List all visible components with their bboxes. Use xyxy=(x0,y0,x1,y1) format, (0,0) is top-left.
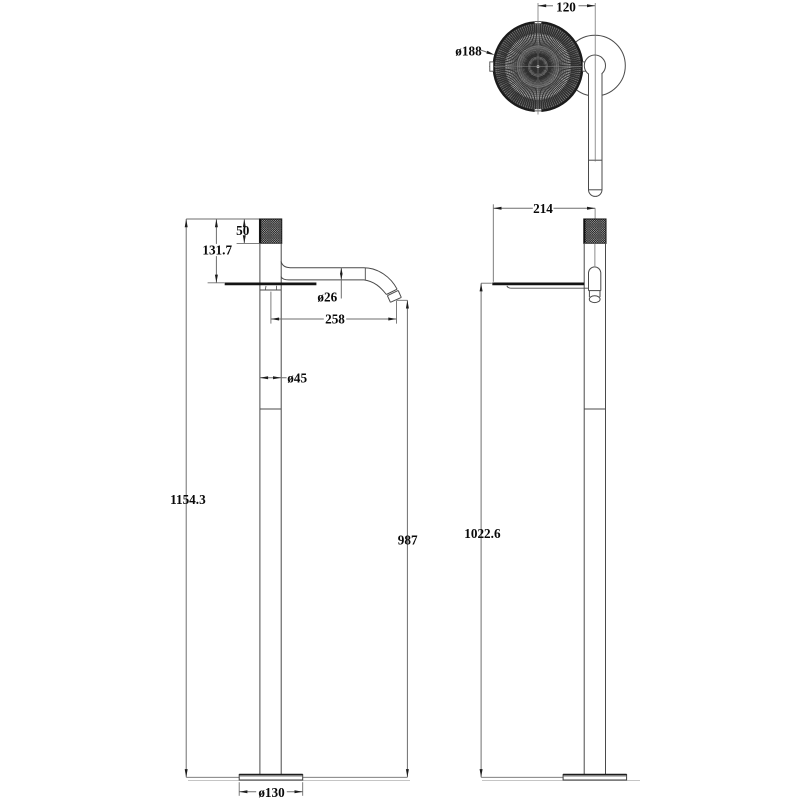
svg-text:987: 987 xyxy=(398,532,418,547)
svg-text:214: 214 xyxy=(533,201,553,216)
svg-text:50: 50 xyxy=(236,223,250,238)
svg-text:ø188: ø188 xyxy=(455,43,482,58)
svg-text:258: 258 xyxy=(325,312,345,327)
svg-text:ø130: ø130 xyxy=(258,785,285,800)
svg-text:1022.6: 1022.6 xyxy=(464,526,501,541)
svg-text:1154.3: 1154.3 xyxy=(170,492,206,507)
svg-text:131.7: 131.7 xyxy=(202,243,232,258)
svg-text:120: 120 xyxy=(556,0,576,15)
svg-text:ø26: ø26 xyxy=(317,290,337,305)
svg-text:ø45: ø45 xyxy=(287,370,307,385)
